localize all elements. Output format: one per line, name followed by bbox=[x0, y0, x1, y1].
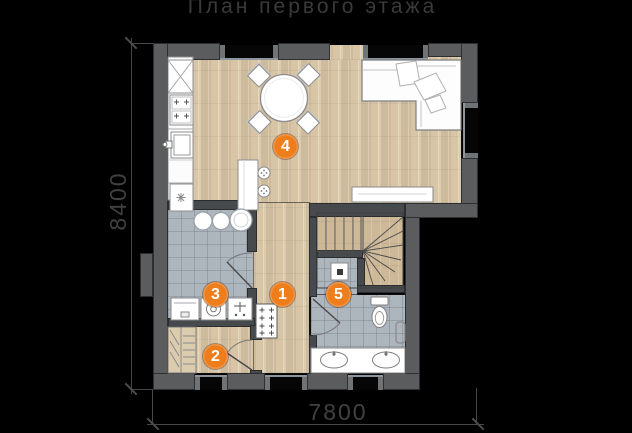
marker-4: 4 bbox=[273, 134, 298, 159]
dimension-extension bbox=[132, 389, 153, 390]
stairs bbox=[317, 213, 403, 288]
marker-3-label: 3 bbox=[211, 286, 220, 304]
appliance-icon bbox=[170, 184, 193, 211]
sofa bbox=[362, 60, 461, 130]
cabinet-icon bbox=[168, 60, 193, 93]
toilet-icon bbox=[371, 297, 388, 328]
dining-set bbox=[246, 62, 320, 134]
marker-2-label: 2 bbox=[211, 348, 220, 366]
utility-sink-icon bbox=[171, 298, 199, 320]
floor-plan-image: 1 2 3 4 5 8400 7800 План первого этажа bbox=[0, 0, 632, 433]
stove-icon bbox=[170, 95, 193, 125]
marker-5: 5 bbox=[326, 282, 351, 307]
dimension-extension bbox=[132, 43, 153, 44]
dimension-horizontal-label: 7800 bbox=[298, 399, 378, 426]
dimension-extension bbox=[152, 390, 153, 425]
furniture-layer bbox=[0, 0, 632, 433]
door-utility bbox=[227, 253, 252, 288]
marker-1-label: 1 bbox=[278, 286, 287, 304]
door-entry bbox=[227, 340, 252, 370]
marker-4-label: 4 bbox=[281, 138, 290, 156]
marker-3: 3 bbox=[203, 282, 228, 307]
bar-stool-icon bbox=[258, 185, 270, 197]
dimension-extension bbox=[476, 388, 477, 425]
dimension-vertical-label: 8400 bbox=[105, 171, 127, 231]
vanity-double-sink bbox=[311, 348, 405, 373]
marker-5-label: 5 bbox=[334, 286, 343, 304]
laundry-faucet-icon bbox=[228, 298, 252, 320]
marker-1: 1 bbox=[270, 282, 295, 307]
radiator-panel bbox=[256, 304, 277, 338]
water-heater-icon bbox=[331, 263, 348, 280]
bar-stool-icon bbox=[258, 167, 270, 179]
wardrobe bbox=[168, 327, 196, 373]
utility-tanks bbox=[194, 209, 252, 231]
kitchen-island bbox=[238, 160, 258, 210]
marker-2: 2 bbox=[203, 344, 228, 369]
tv-console bbox=[352, 187, 433, 202]
page-title: План первого этажа bbox=[0, 0, 625, 19]
dimension-line bbox=[131, 38, 132, 394]
towel-radiator-icon bbox=[396, 322, 405, 343]
